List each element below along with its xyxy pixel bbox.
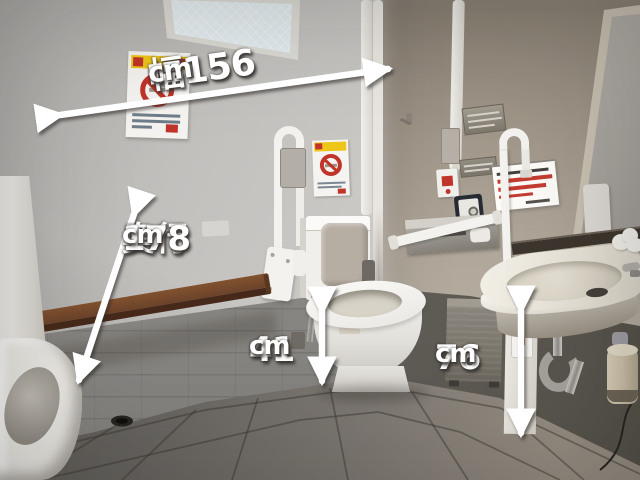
plaque-text-line <box>464 168 489 173</box>
depth-unit: cm <box>122 222 163 249</box>
accessible-restroom-photo: 幅156cm 奥行 178cm 41cm 76cm <box>0 0 640 480</box>
grab-bar-control-box <box>280 148 306 188</box>
wall-sticker <box>202 220 230 236</box>
poster-red-text-block <box>133 57 143 66</box>
plaque-text-line <box>468 117 502 123</box>
cylinder-cap <box>607 344 638 356</box>
seat-height-unit: cm <box>249 333 290 360</box>
mirror-reflection-dispenser <box>583 183 612 234</box>
water-supply-pipe <box>361 0 372 215</box>
poster-stamp <box>166 124 178 132</box>
heater-leg <box>489 381 499 387</box>
emergency-red-button <box>445 189 450 194</box>
pipe-cover-cylinder <box>607 344 638 404</box>
crumpled-paper <box>612 226 640 254</box>
cable <box>600 398 636 470</box>
toilet-paper-roll <box>470 227 491 242</box>
poster-stamp <box>338 188 346 193</box>
poster-text-line <box>132 119 180 124</box>
toilet-floor-shadow <box>318 386 428 401</box>
sink-height-unit: cm <box>435 341 476 368</box>
faucet-base <box>630 270 640 277</box>
toilet-backrest-pad <box>321 223 368 286</box>
grab-bar-end-cap <box>520 169 532 177</box>
toilet-stop-valve <box>293 250 306 276</box>
grab-bar-mount <box>387 235 399 251</box>
junction-box <box>441 128 460 164</box>
heater-leg <box>449 380 459 386</box>
width-unit: cm <box>146 54 193 88</box>
poster-text-line <box>132 125 152 129</box>
emergency-red-label <box>442 176 454 187</box>
paper <box>626 238 640 252</box>
no-smoking-icon <box>320 154 343 177</box>
poster-text-line <box>132 113 180 118</box>
emergency-call-button <box>436 168 459 197</box>
corner-pipe <box>373 0 383 298</box>
plaque-text-line <box>469 124 495 129</box>
screw <box>270 253 275 258</box>
plaque-text-line <box>464 163 493 168</box>
cylinder-base-band <box>607 390 638 402</box>
grab-bar-stub <box>521 150 530 172</box>
plaque-text-line <box>467 111 499 117</box>
screw <box>286 259 291 264</box>
